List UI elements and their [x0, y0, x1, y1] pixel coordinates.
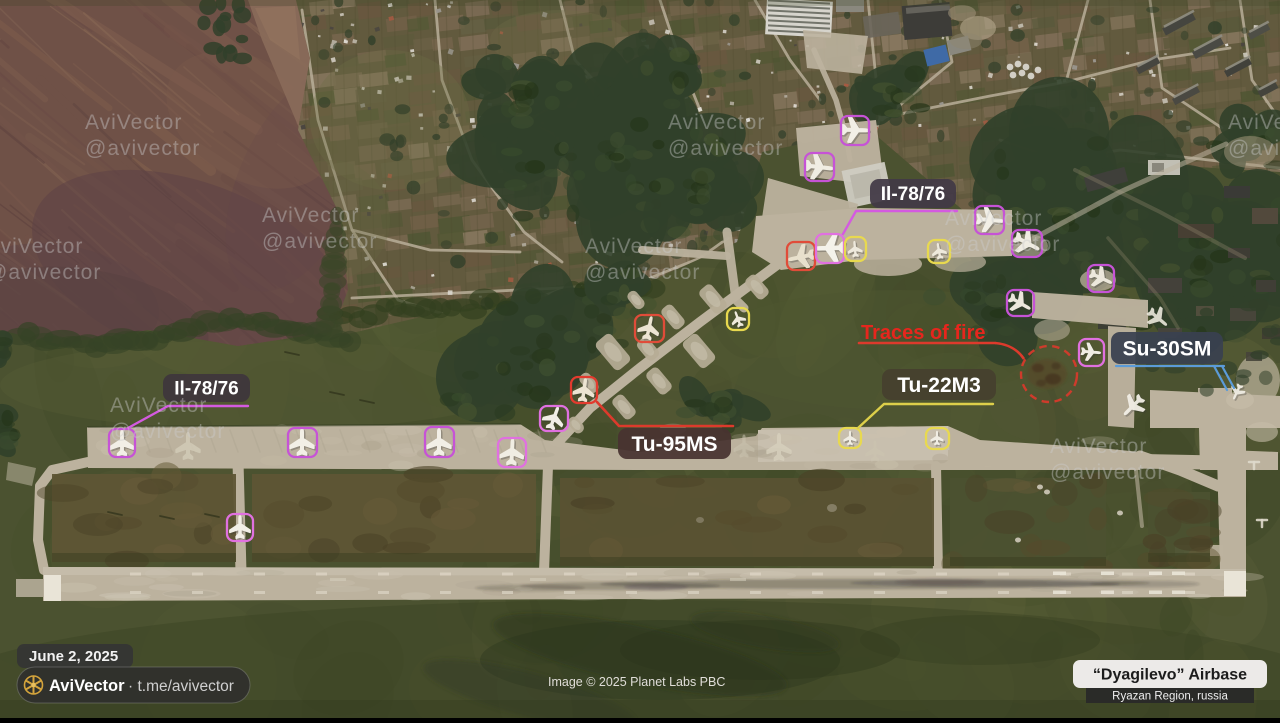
svg-text:AviVector: AviVector [85, 111, 182, 134]
svg-text:@avivector: @avivector [110, 420, 225, 443]
svg-text:AviVector: AviVector [668, 111, 765, 134]
svg-text:@avivector: @avivector [0, 261, 101, 284]
svg-text:AviVector: AviVector [1228, 111, 1280, 134]
svg-text:“Dyagilevo” Airbase: “Dyagilevo” Airbase [1093, 667, 1247, 684]
svg-text:Tu-22M3: Tu-22M3 [897, 374, 981, 397]
svg-text:Traces of fire: Traces of fire [861, 322, 986, 344]
svg-text:AviVector: AviVector [49, 677, 125, 695]
svg-text:@avivector: @avivector [945, 233, 1060, 256]
svg-text:@avivector: @avivector [668, 137, 783, 160]
svg-text:Il-78/76: Il-78/76 [881, 184, 945, 205]
svg-text:Tu-95MS: Tu-95MS [632, 433, 718, 456]
svg-text:AviVector: AviVector [110, 394, 207, 417]
svg-text:Su-30SM: Su-30SM [1123, 337, 1212, 360]
svg-text:@avivector: @avivector [262, 230, 377, 253]
svg-text:AviVector: AviVector [0, 235, 83, 258]
svg-text:@avivector: @avivector [585, 261, 700, 284]
svg-text:@avivector: @avivector [1228, 137, 1280, 160]
svg-text:@avivector: @avivector [85, 137, 200, 160]
svg-text:@avivector: @avivector [1050, 461, 1165, 484]
svg-text:· t.me/avivector: · t.me/avivector [128, 678, 234, 695]
svg-text:Image © 2025 Planet Labs PBC: Image © 2025 Planet Labs PBC [548, 675, 725, 689]
svg-text:AviVector: AviVector [1050, 435, 1147, 458]
svg-text:AviVector: AviVector [585, 235, 682, 258]
svg-text:AviVector: AviVector [262, 204, 359, 227]
svg-text:June 2, 2025: June 2, 2025 [29, 648, 118, 665]
svg-text:AviVector: AviVector [945, 207, 1042, 230]
svg-text:Ryazan Region, russia: Ryazan Region, russia [1112, 691, 1228, 703]
